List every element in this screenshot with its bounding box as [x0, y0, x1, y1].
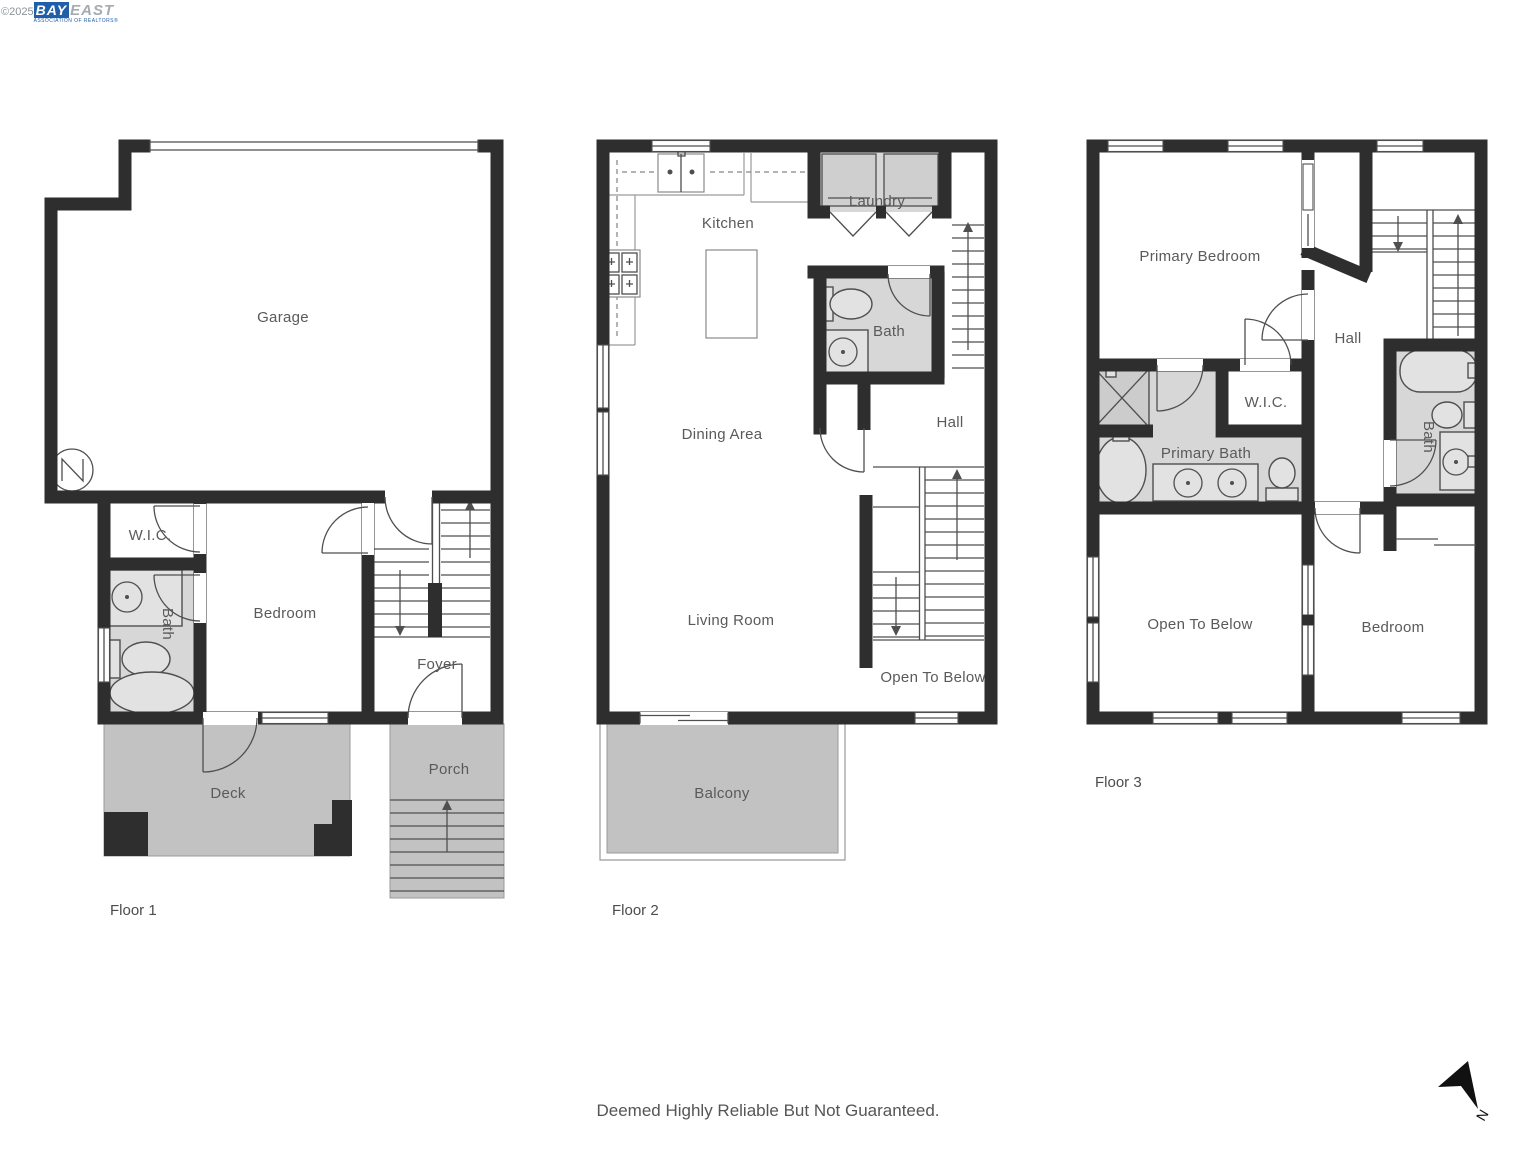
room-label-deck: Deck: [210, 785, 246, 802]
room-label-wic1: W.I.C.: [129, 527, 172, 544]
room-label-dining: Dining Area: [682, 426, 763, 443]
room-label-open-below2: Open To Below: [880, 669, 985, 686]
bath2-fixtures: [820, 287, 872, 374]
floorplan-canvas: Garage W.I.C. Bath Bedroom Foyer Deck Po…: [0, 0, 1536, 1152]
stairs3-down-arrow: [1393, 242, 1403, 252]
room-label-open-below3: Open To Below: [1147, 616, 1252, 633]
bathtub: [1400, 350, 1477, 392]
floor3-plan: Primary Bedroom Hall W.I.C. Primary Bath…: [1087, 140, 1488, 792]
kitchen-island: [706, 250, 757, 338]
floor1-label: Floor 1: [110, 902, 157, 919]
room-label-garage: Garage: [257, 309, 309, 326]
bathtub: [1096, 437, 1146, 503]
stairs1-down-arrow: [395, 626, 405, 636]
room-label-living: Living Room: [688, 612, 775, 629]
room-label-bath1: Bath: [159, 608, 176, 640]
room-label-balcony: Balcony: [694, 785, 750, 802]
stairs2-lower: [873, 467, 984, 640]
room-label-bedroom1: Bedroom: [254, 605, 317, 622]
room-label-porch: Porch: [429, 761, 470, 778]
room-label-hall2: Hall: [936, 414, 963, 431]
stairs2-up: [952, 225, 984, 368]
room-label-primary-bath: Primary Bath: [1161, 445, 1251, 462]
floor3-label: Floor 3: [1095, 774, 1142, 791]
floor1-plan: Garage W.I.C. Bath Bedroom Foyer Deck Po…: [45, 140, 505, 920]
room-label-primary-bedroom: Primary Bedroom: [1139, 248, 1260, 265]
room-label-bath3: Bath: [1420, 421, 1437, 453]
double-vanity: [1153, 464, 1258, 501]
stair-rail-wall: [428, 583, 442, 637]
sliding-door: [640, 712, 728, 725]
room-label-bath2: Bath: [873, 323, 905, 340]
toilet: [1266, 488, 1298, 501]
room-label-bedroom3: Bedroom: [1362, 619, 1425, 636]
room-label-foyer: Foyer: [417, 656, 457, 673]
stairs2-lower-down-arrow: [891, 626, 901, 636]
garage-door: [150, 140, 478, 153]
room-label-wic3: W.I.C.: [1245, 394, 1288, 411]
bathtub: [110, 672, 194, 714]
stairs3: [1373, 210, 1482, 340]
stairs3-up-arrow: [1453, 214, 1463, 224]
room-label-laundry: Laundry: [849, 193, 906, 210]
stairs2-lower-up-arrow: [952, 469, 962, 479]
kitchen-counters: [601, 146, 818, 345]
room-label-kitchen: Kitchen: [702, 215, 754, 232]
floor2-walls: [597, 140, 998, 725]
disclaimer-text: Deemed Highly Reliable But Not Guarantee…: [0, 1101, 1536, 1121]
room-label-hall3: Hall: [1334, 330, 1361, 347]
closet-sliding-doors: [1396, 539, 1476, 545]
stairs2-up-arrow: [963, 222, 973, 232]
floor2-plan: Kitchen Laundry Bath Hall Dining Area Li…: [597, 140, 998, 920]
floor2-label: Floor 2: [612, 902, 659, 919]
